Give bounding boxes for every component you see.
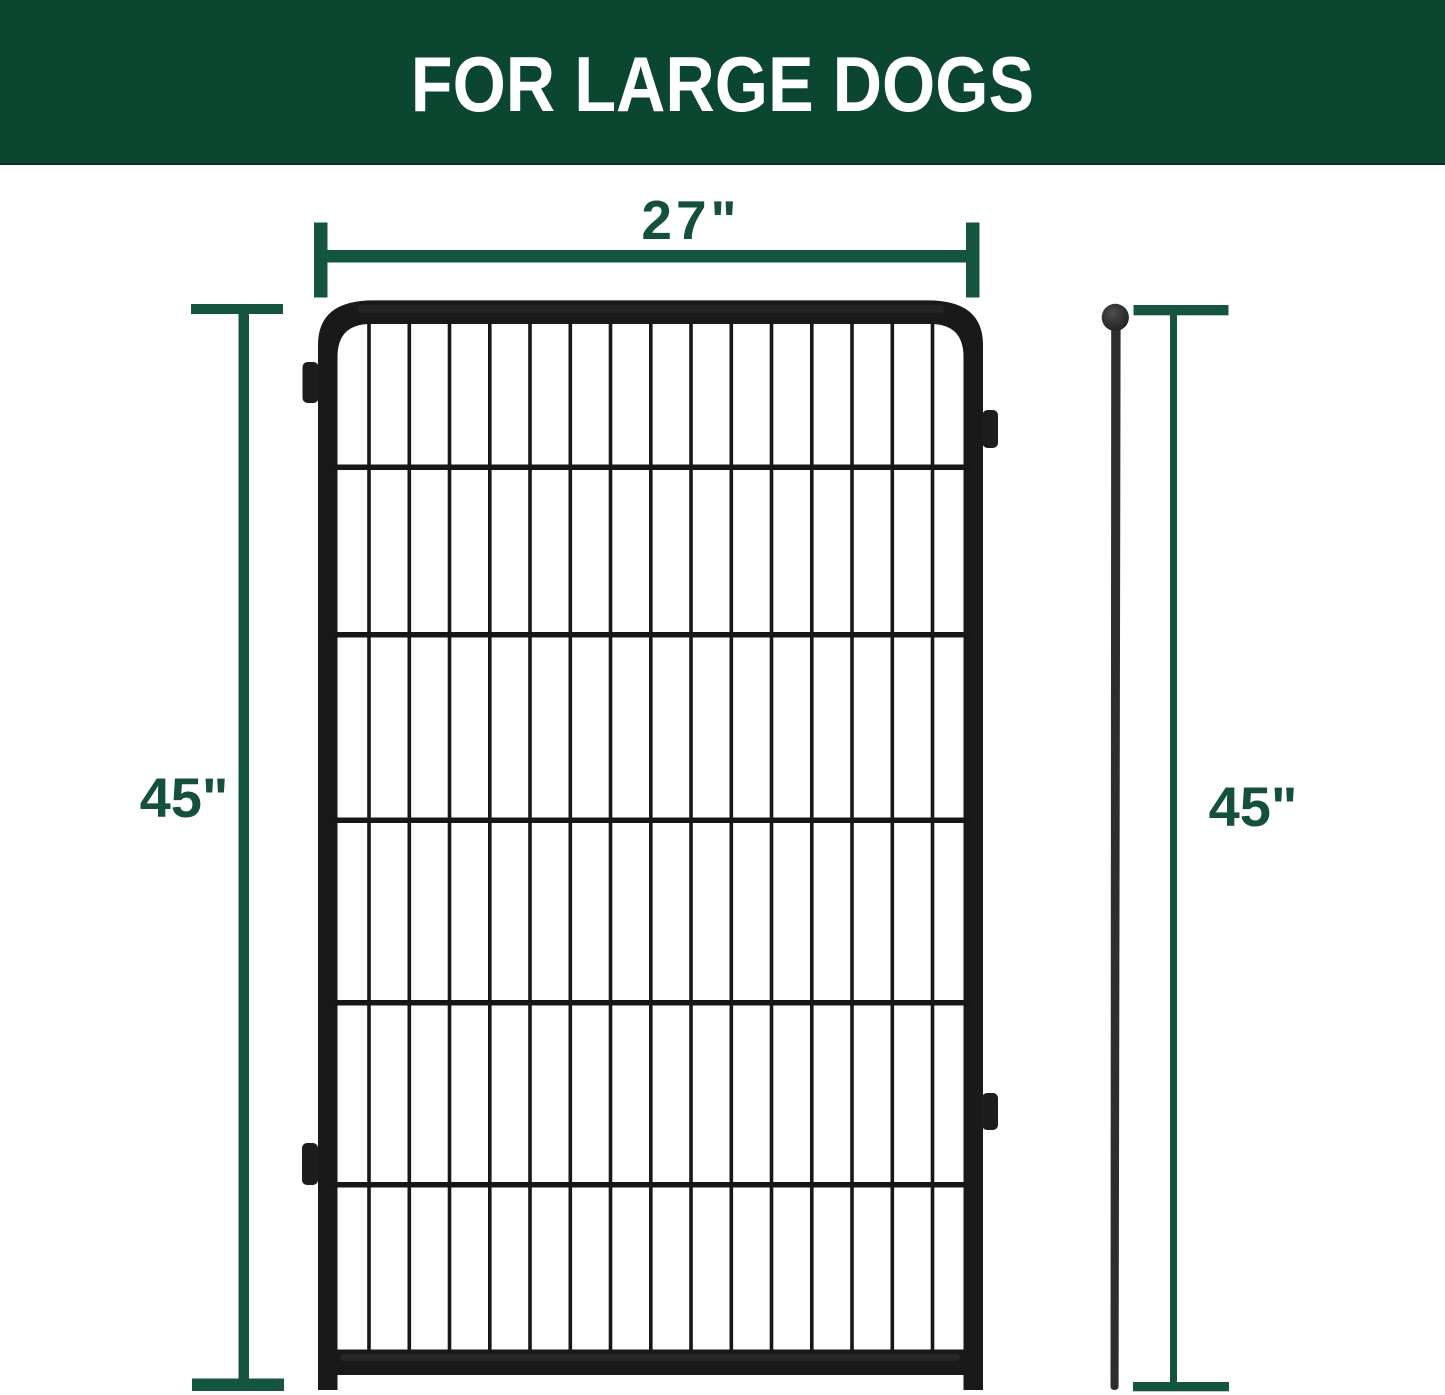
svg-text:45": 45" bbox=[1209, 775, 1298, 838]
svg-text:45": 45" bbox=[140, 766, 229, 829]
